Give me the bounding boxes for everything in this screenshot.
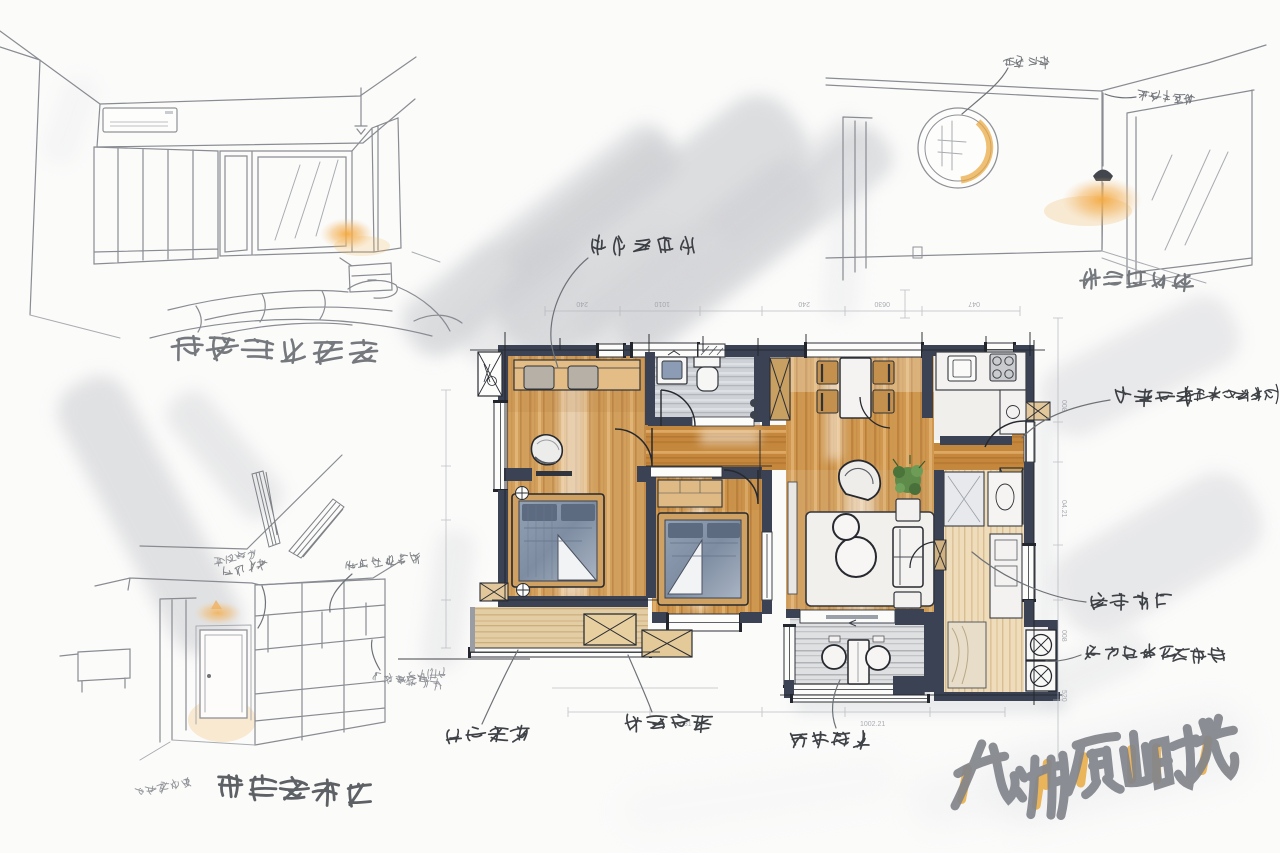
svg-text:047: 047 (968, 300, 980, 307)
svg-text:008: 008 (1060, 400, 1067, 412)
svg-text:1010: 1010 (654, 300, 670, 307)
svg-text:0630: 0630 (874, 300, 890, 307)
svg-text:240: 240 (798, 300, 810, 307)
svg-text:008: 008 (1060, 630, 1067, 642)
svg-text:240: 240 (576, 300, 588, 307)
svg-text:520: 520 (1060, 690, 1067, 702)
svg-text:04.21: 04.21 (1060, 500, 1067, 518)
svg-text:1002.21: 1002.21 (860, 721, 885, 728)
